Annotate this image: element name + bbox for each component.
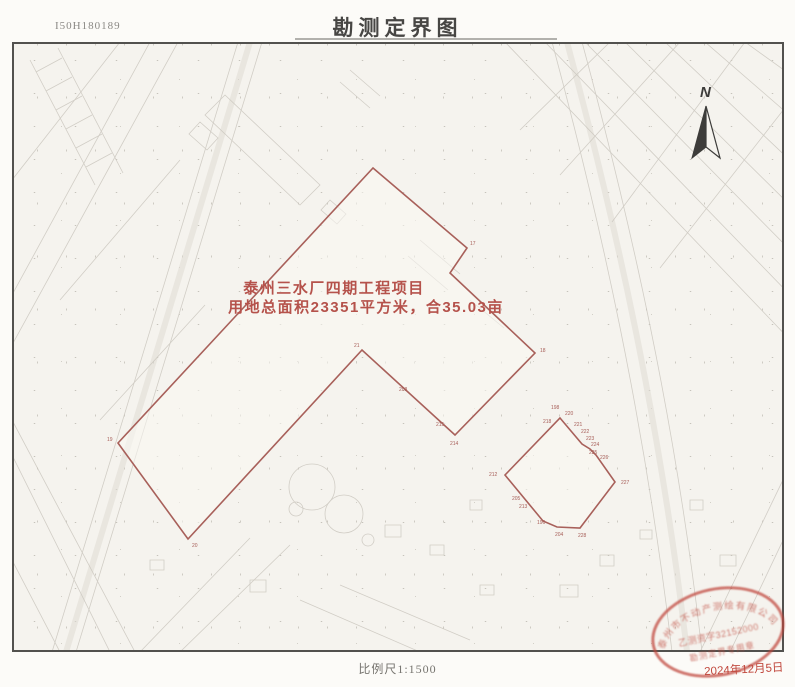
north-arrow-left-half: [692, 106, 706, 158]
land-area-annotation: 用地总面积23351平方米，合35.03亩: [228, 298, 504, 316]
vertex-label: 18: [540, 348, 546, 354]
vertex-label: 220: [565, 411, 574, 417]
map-frame: 1718212082152141920198220218221222223224…: [12, 42, 784, 652]
vertex-label: 198: [551, 405, 560, 411]
vertex-label: 208: [399, 387, 408, 393]
vertex-label: 205: [512, 496, 521, 502]
scale-label: 比例尺1:1500: [0, 660, 795, 677]
project-name-annotation: 泰州三水厂四期工程项目: [242, 279, 425, 297]
title-underline: [295, 38, 557, 40]
vertex-label: 204: [555, 532, 564, 538]
vertex-label: 215: [436, 422, 445, 428]
vertex-label: 214: [450, 441, 459, 447]
vertex-label: 19: [107, 437, 113, 443]
north-arrow-right-half: [706, 106, 720, 158]
parcel-boundary-main: [118, 168, 535, 539]
north-label: N: [700, 84, 712, 101]
vertex-label: 227: [621, 480, 630, 486]
vertex-label: 17: [470, 241, 476, 247]
survey-demarcation-sheet: { "header": { "sheet_no": "I50H180189", …: [0, 0, 795, 687]
vertex-label: 196: [537, 520, 546, 526]
vertex-label: 228: [578, 533, 587, 539]
parcel-boundary-small: [505, 418, 615, 528]
vertex-label: 226: [600, 455, 609, 461]
vertex-label: 224: [591, 442, 600, 448]
vertex-label: 221: [574, 422, 583, 428]
vertex-label: 225: [589, 450, 598, 456]
north-arrow: N: [692, 84, 720, 158]
vertex-label: 21: [354, 343, 360, 349]
vertex-label: 222: [581, 429, 590, 435]
vertex-label: 213: [519, 504, 528, 510]
map-canvas: 1718212082152141920198220218221222223224…: [12, 42, 784, 652]
vertex-label: 212: [489, 472, 498, 478]
vertex-label: 218: [543, 419, 552, 425]
vertex-label: 20: [192, 543, 198, 549]
